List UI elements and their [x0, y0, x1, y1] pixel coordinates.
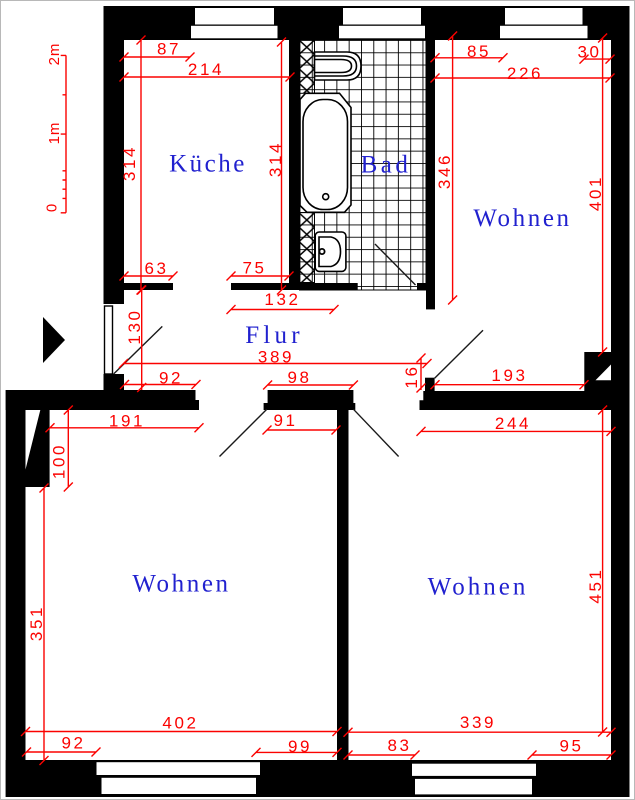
svg-text:16: 16 — [402, 364, 421, 388]
svg-text:30: 30 — [577, 43, 601, 62]
svg-text:339: 339 — [460, 713, 496, 732]
svg-text:92: 92 — [159, 369, 183, 388]
svg-text:87: 87 — [157, 40, 181, 59]
svg-text:214: 214 — [188, 60, 224, 79]
svg-text:389: 389 — [258, 348, 294, 367]
svg-text:346: 346 — [435, 153, 454, 189]
svg-text:314: 314 — [266, 141, 285, 177]
svg-text:63: 63 — [144, 259, 168, 278]
svg-text:351: 351 — [27, 605, 46, 641]
svg-text:1m: 1m — [46, 122, 63, 145]
svg-text:0: 0 — [44, 203, 61, 212]
svg-text:95: 95 — [559, 737, 583, 756]
svg-text:98: 98 — [287, 368, 311, 387]
svg-text:191: 191 — [109, 412, 145, 431]
svg-text:75: 75 — [242, 259, 266, 278]
svg-text:Wohnen: Wohnen — [428, 574, 529, 601]
svg-text:451: 451 — [586, 567, 605, 603]
svg-text:244: 244 — [495, 414, 531, 433]
svg-text:402: 402 — [162, 714, 198, 733]
svg-text:132: 132 — [264, 290, 300, 309]
svg-text:193: 193 — [491, 366, 527, 385]
svg-text:Bad: Bad — [361, 152, 412, 179]
svg-text:100: 100 — [50, 443, 69, 479]
svg-text:2m: 2m — [46, 43, 63, 66]
svg-text:401: 401 — [586, 175, 605, 211]
svg-text:85: 85 — [467, 42, 491, 61]
svg-text:226: 226 — [507, 64, 543, 83]
svg-text:314: 314 — [120, 145, 139, 181]
svg-text:Küche: Küche — [169, 151, 247, 178]
svg-text:92: 92 — [61, 734, 85, 753]
svg-text:Wohnen: Wohnen — [473, 205, 571, 232]
svg-text:99: 99 — [288, 737, 312, 756]
svg-text:Wohnen: Wohnen — [132, 571, 230, 598]
svg-text:91: 91 — [273, 411, 297, 430]
svg-text:83: 83 — [387, 736, 411, 755]
svg-text:130: 130 — [125, 308, 144, 344]
svg-text:Flur: Flur — [245, 322, 303, 349]
